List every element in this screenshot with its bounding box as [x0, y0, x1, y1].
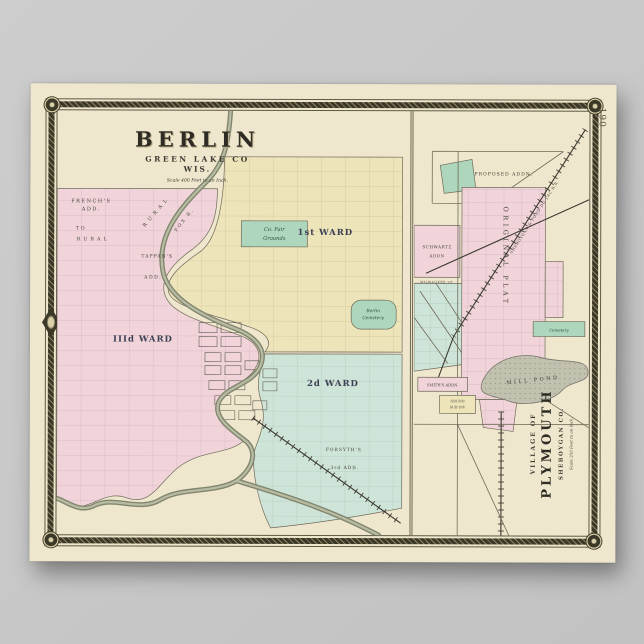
- berlin-cemetery-label: Berlin: [365, 309, 380, 314]
- berlin-map-panel: Co. Fair Grounds Berlin Cemetery BERLIN …: [56, 110, 409, 535]
- grund-subdivision: GRUND SUB DIV: [440, 395, 476, 413]
- plymouth-title-prefix: VILLAGE OF: [530, 413, 537, 476]
- grund-subdiv-label: GRUND: [451, 399, 465, 403]
- map-sheet: Co. Fair Grounds Berlin Cemetery BERLIN …: [56, 110, 589, 535]
- plymouth-county: SHEBOYGAN CO.: [559, 407, 565, 480]
- corner-rosette-icon: [586, 534, 601, 549]
- plymouth-map-panel: TAYLORS PROPOSED ADDN.: [414, 111, 590, 535]
- plymouth-title: PLYMOUTH: [540, 388, 555, 498]
- plymouth-cemetery-label: Cemetery: [549, 328, 569, 333]
- to-rural-label: TO: [76, 225, 87, 231]
- berlin-cemetery-label: Cemetery: [362, 316, 384, 321]
- ward2-label: 2d WARD: [307, 379, 359, 389]
- rural-label: RURAL: [77, 236, 110, 242]
- berlin-scale-note: Scale 400 Feet to an Inch.: [167, 178, 229, 184]
- plymouth-cemetery: Cemetery: [533, 322, 585, 337]
- original-plat-label: ORIGINAL PLAT: [502, 206, 510, 306]
- corner-rosette-icon: [43, 532, 58, 547]
- page-number: 190: [596, 108, 606, 128]
- frenchs-add-label: FRENCH'S: [71, 198, 111, 204]
- berlin-county: GREEN LAKE CO: [145, 155, 250, 164]
- berlin-map: Co. Fair Grounds Berlin Cemetery BERLIN …: [56, 110, 409, 535]
- frenchs-add-label: ADD.: [81, 206, 101, 212]
- schwartz-addn-label: SCHWARTZ: [422, 244, 451, 249]
- fair-grounds-label: Co. Fair: [264, 227, 285, 233]
- tappans-add-label: ADD.: [143, 275, 162, 281]
- schwartz-addition: SCHWARTZ ADDN MILWAUKEE ST.: [414, 225, 460, 284]
- map-poster: 190: [29, 83, 616, 563]
- plymouth-scale-note: Scale 350 Feet to an Inch.: [569, 417, 574, 470]
- berlin-state: WIS.: [183, 165, 212, 174]
- ward1-label: 1st WARD: [298, 228, 354, 238]
- smiths-addition: SMITH'S ADDN.: [418, 377, 468, 391]
- plymouth-title-block: VILLAGE OF PLYMOUTH SHEBOYGAN CO. Scale …: [530, 388, 574, 498]
- ward3-label: IIId WARD: [113, 334, 173, 344]
- smiths-addn-label: SMITH'S ADDN.: [427, 382, 458, 387]
- berlin-title: BERLIN: [135, 127, 260, 152]
- fair-grounds-label: Grounds: [263, 236, 286, 242]
- plymouth-map: TAYLORS PROPOSED ADDN.: [414, 111, 590, 535]
- forsyths-add-label: FORSYTH'S: [326, 448, 362, 453]
- forsyths-add-label: 3rd ADD.: [330, 466, 359, 471]
- grund-subdiv-label: SUB DIV: [450, 405, 466, 409]
- berlin-cemetery: Berlin Cemetery: [351, 300, 396, 329]
- tappans-add-label: TAPPAN'S: [141, 254, 173, 260]
- milwaukee-st-label: MILWAUKEE ST.: [420, 280, 454, 284]
- schwartz-addn-label: ADDN: [429, 253, 445, 258]
